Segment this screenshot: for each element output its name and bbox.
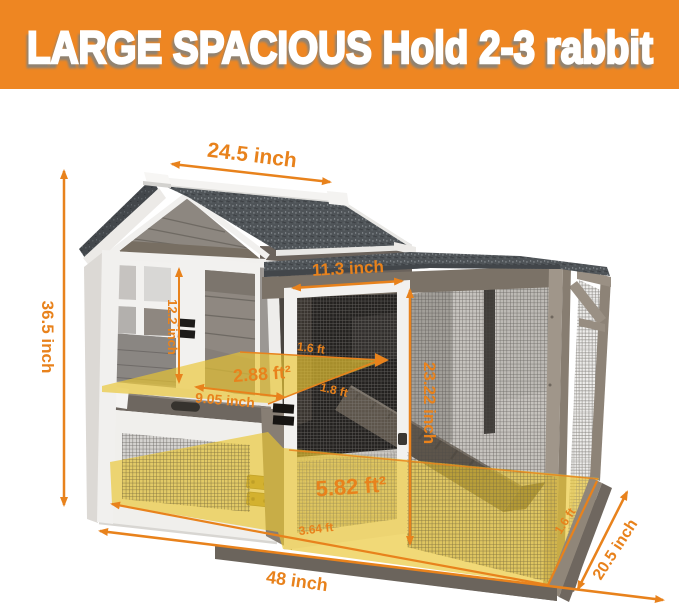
svg-text:11.3 inch: 11.3 inch (312, 257, 385, 280)
svg-text:12.2 inch: 12.2 inch (165, 299, 180, 355)
svg-text:5.82 ft²: 5.82 ft² (315, 472, 387, 502)
svg-text:23.22 inch: 23.22 inch (420, 362, 439, 444)
svg-text:2.88 ft²: 2.88 ft² (232, 362, 291, 386)
svg-text:LARGE SPACIOUS Hold 2-3 rabbit: LARGE SPACIOUS Hold 2-3 rabbit (27, 22, 653, 73)
svg-text:36.5 inch: 36.5 inch (38, 301, 57, 374)
